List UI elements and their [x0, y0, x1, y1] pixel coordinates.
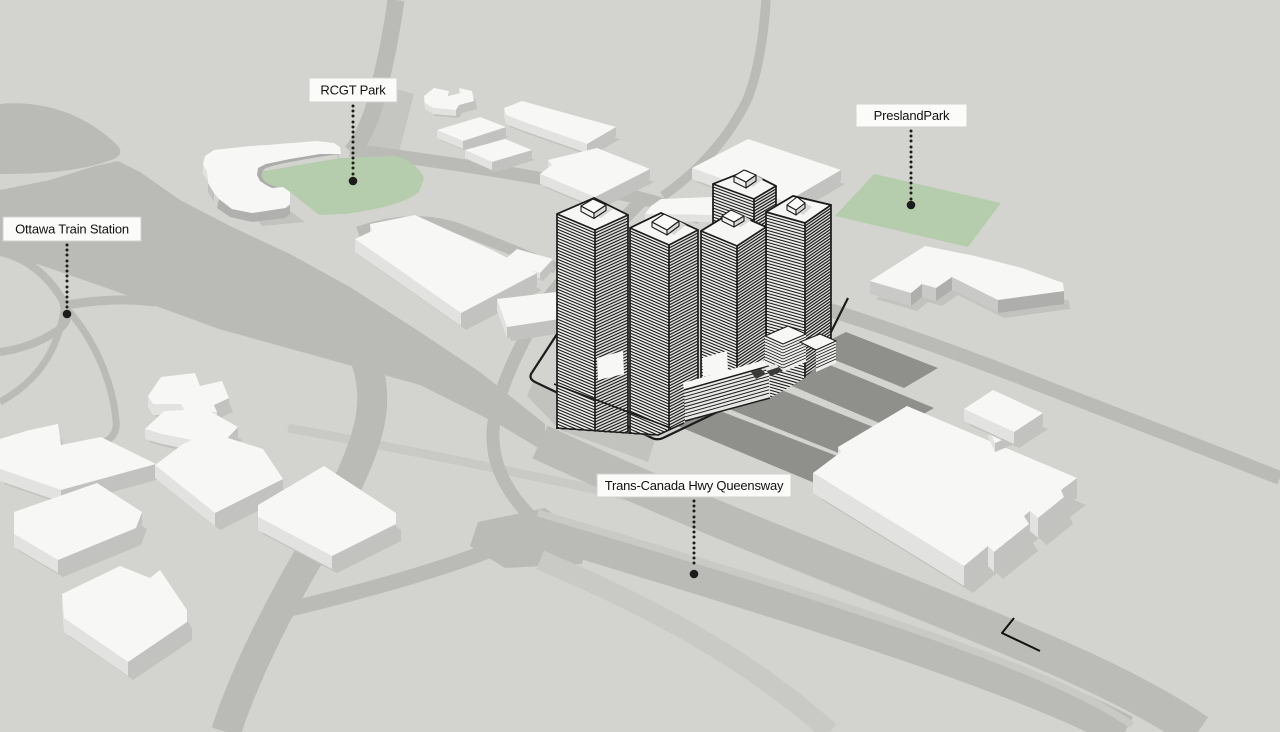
svg-text:RCGT Park: RCGT Park: [320, 83, 386, 98]
svg-text:Trans-Canada Hwy Queensway: Trans-Canada Hwy Queensway: [605, 478, 784, 493]
svg-text:PreslandPark: PreslandPark: [874, 108, 950, 123]
svg-text:Ottawa Train Station: Ottawa Train Station: [15, 222, 129, 237]
